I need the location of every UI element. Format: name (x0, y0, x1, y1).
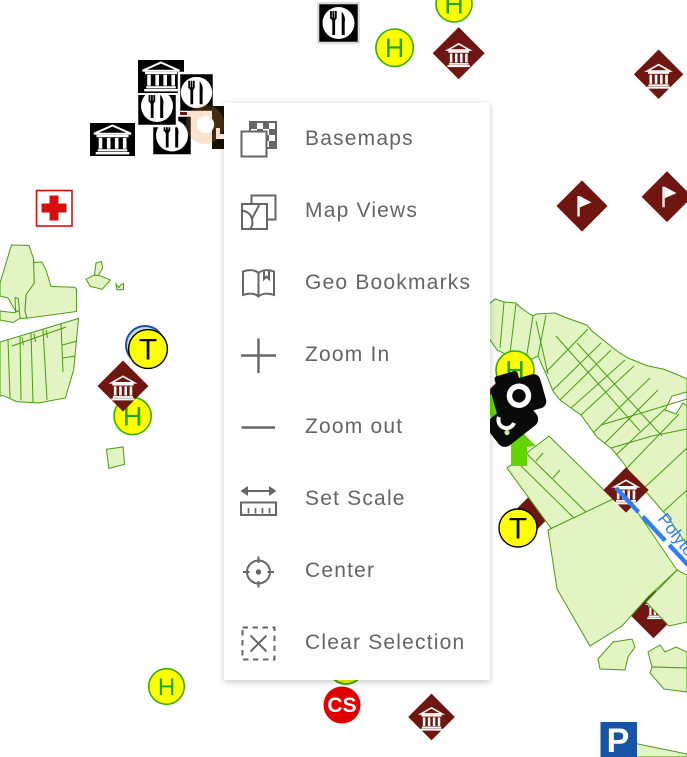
svg-text:H: H (385, 33, 405, 63)
svg-text:T: T (139, 334, 157, 367)
svg-text:H: H (444, 0, 464, 20)
svg-text:H: H (158, 674, 175, 701)
svg-text:CS: CS (327, 694, 356, 717)
svg-text:P: P (607, 722, 630, 757)
svg-text:T: T (509, 513, 527, 546)
